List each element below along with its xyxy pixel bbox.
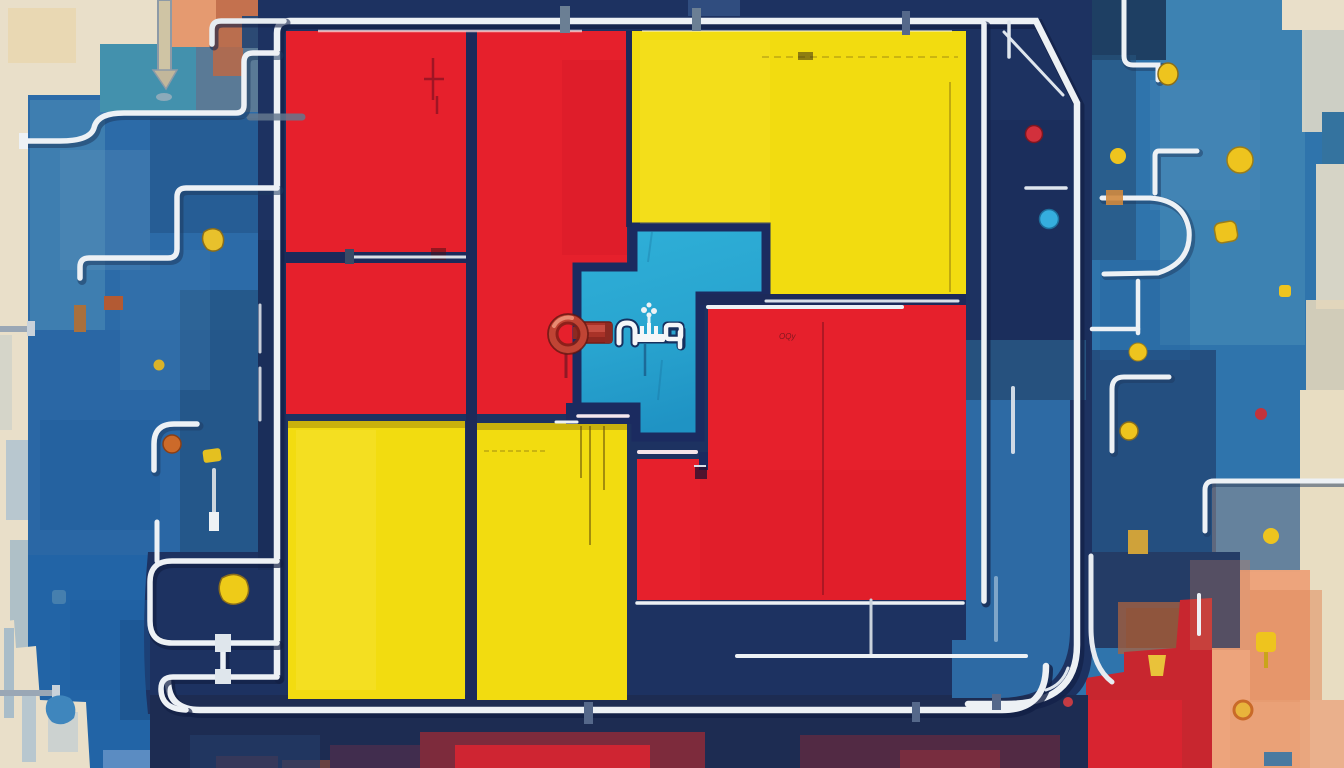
svg-text:OQy: OQy	[779, 332, 796, 341]
